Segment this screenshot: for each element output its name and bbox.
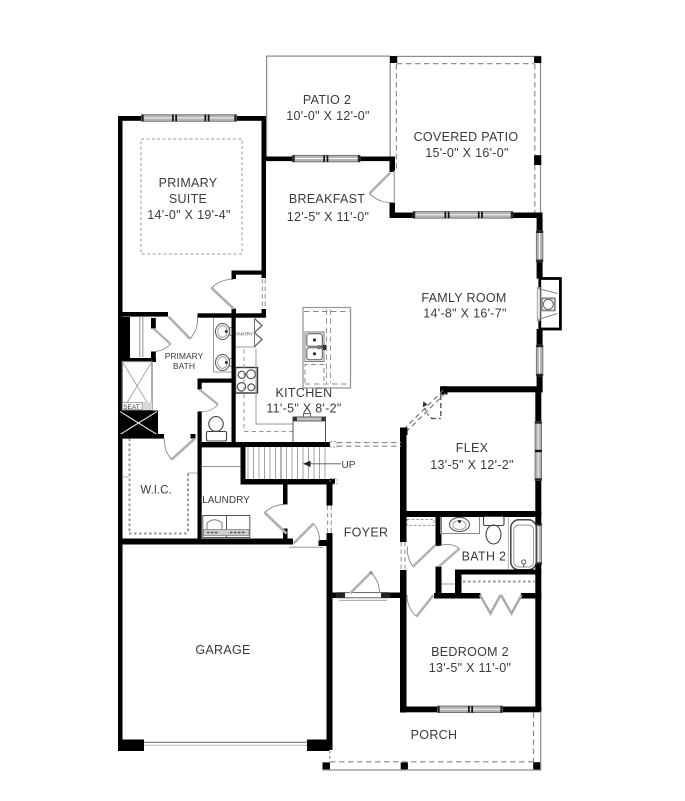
svg-text:13'-5" X 11'-0": 13'-5" X 11'-0" [429, 661, 512, 675]
svg-text:15'-0" X 16'-0": 15'-0" X 16'-0" [425, 146, 508, 160]
svg-text:BATH: BATH [173, 361, 195, 371]
svg-text:SEAT: SEAT [123, 404, 140, 411]
svg-text:PRIMARY: PRIMARY [165, 351, 204, 361]
svg-text:FLEX: FLEX [456, 441, 489, 455]
svg-text:BEDROOM 2: BEDROOM 2 [431, 645, 509, 659]
svg-text:SUITE: SUITE [169, 192, 207, 206]
svg-text:BATH 2: BATH 2 [462, 550, 507, 564]
svg-text:PATIO 2: PATIO 2 [303, 93, 351, 107]
svg-text:W.I.C.: W.I.C. [140, 485, 171, 497]
svg-text:14'-8" X 16'-7": 14'-8" X 16'-7" [423, 307, 506, 321]
svg-text:UP: UP [342, 460, 356, 471]
svg-text:FOYER: FOYER [344, 526, 389, 540]
svg-text:13'-5" X 12'-2": 13'-5" X 12'-2" [430, 458, 513, 472]
svg-text:14'-0" X 19'-4": 14'-0" X 19'-4" [147, 208, 230, 222]
svg-text:PRIMARY: PRIMARY [159, 176, 218, 190]
svg-text:COVERED PATIO: COVERED PATIO [414, 130, 519, 144]
svg-text:GARAGE: GARAGE [195, 643, 250, 657]
svg-text:PANTRY: PANTRY [235, 332, 253, 337]
svg-text:LAUNDRY: LAUNDRY [202, 495, 250, 506]
svg-text:10'-0" X 12'-0": 10'-0" X 12'-0" [286, 109, 369, 123]
svg-text:12'-5" X 11'-0": 12'-5" X 11'-0" [287, 210, 370, 224]
svg-text:PORCH: PORCH [411, 728, 458, 742]
svg-text:BREAKFAST: BREAKFAST [289, 192, 365, 206]
svg-text:FAMLY ROOM: FAMLY ROOM [421, 291, 506, 305]
